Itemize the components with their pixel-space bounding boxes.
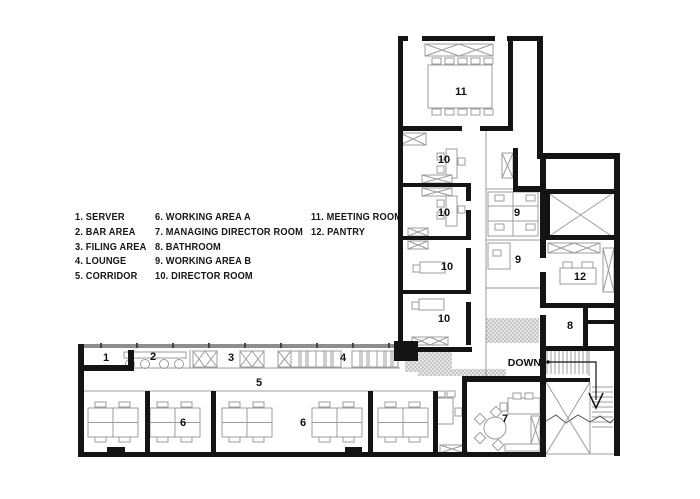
floor-plan-page: 1. SERVER2. BAR AREA3. FILING AREA4. LOU… <box>0 0 700 499</box>
working-area-b-furniture <box>488 192 538 269</box>
room-label-lounge: 4 <box>340 352 347 364</box>
room-label-working-area-b-1: 9 <box>514 207 520 219</box>
room-label-filing-area: 3 <box>228 352 234 364</box>
room-label-director-room-2: 10 <box>438 207 450 219</box>
room-label-working-area-a-1: 6 <box>180 417 186 429</box>
managing-director-furniture <box>437 391 540 453</box>
room-label-director-room-1: 10 <box>438 154 450 166</box>
room-label-server: 1 <box>103 352 109 364</box>
down-label: DOWN <box>508 357 541 369</box>
lobby-cabinet <box>502 153 513 178</box>
room-label-working-area-a-2: 6 <box>300 417 306 429</box>
room-label-director-room-3: 10 <box>441 261 453 273</box>
room-label-bar-area: 2 <box>150 351 156 363</box>
window-band <box>84 343 398 348</box>
room-label-managing-director-room: 7 <box>502 413 508 425</box>
room-label-pantry: 12 <box>574 271 586 283</box>
walls <box>78 36 620 457</box>
pantry-furniture <box>548 243 614 292</box>
working-area-a-desks <box>88 402 428 442</box>
room-label-bathroom: 8 <box>567 320 573 332</box>
room-meeting-furniture <box>425 44 493 115</box>
room-label-working-area-b-2: 9 <box>515 254 521 266</box>
filing-lounge-cabinets <box>193 351 398 367</box>
floor-plan-svg: DOWN 11101010109912871234566 <box>0 0 700 499</box>
room-label-corridor: 5 <box>256 377 262 389</box>
room-label-meeting-room: 11 <box>455 86 467 98</box>
room-label-director-room-4: 10 <box>438 313 450 325</box>
